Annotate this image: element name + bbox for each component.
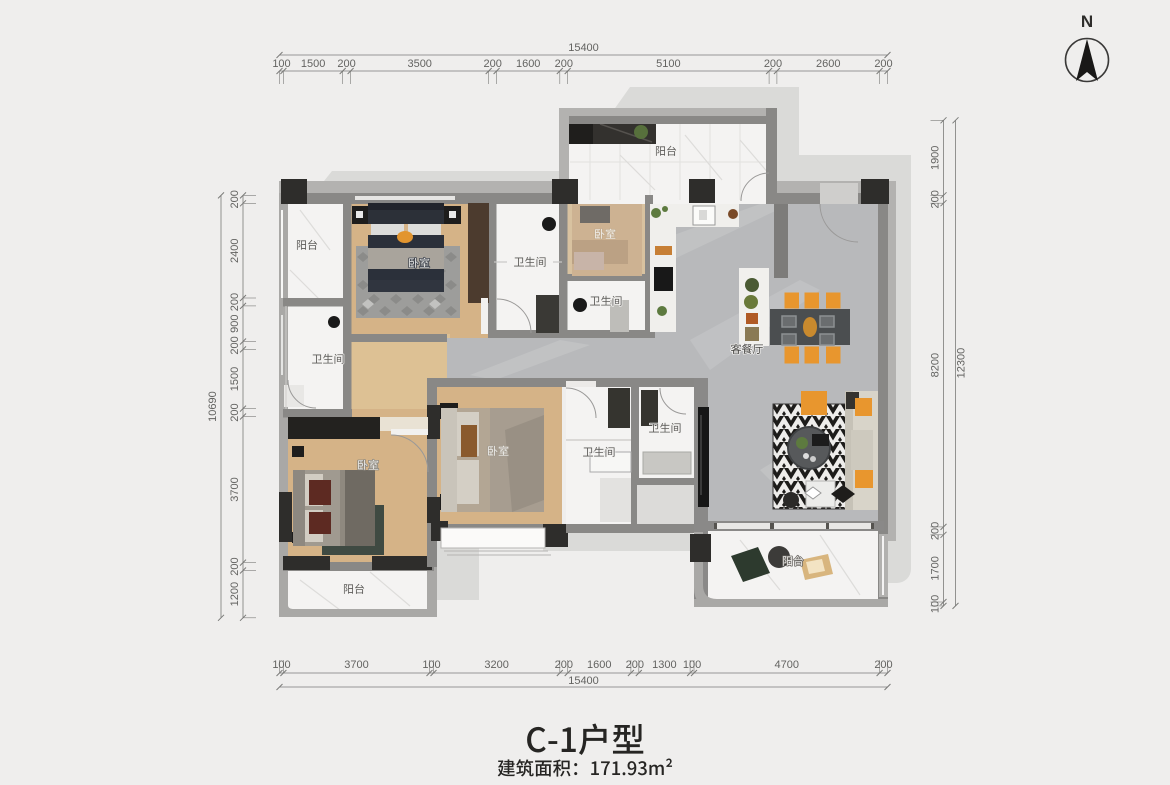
svg-text:1300: 1300 (652, 659, 676, 671)
svg-text:200: 200 (764, 58, 782, 70)
svg-text:100: 100 (422, 659, 440, 671)
svg-text:200: 200 (930, 522, 942, 540)
svg-text:200: 200 (229, 557, 241, 575)
svg-text:100: 100 (930, 595, 942, 613)
svg-text:15400: 15400 (568, 675, 599, 687)
svg-text:1500: 1500 (301, 58, 325, 70)
svg-text:200: 200 (229, 403, 241, 421)
svg-text:1200: 1200 (229, 582, 241, 606)
svg-text:200: 200 (555, 58, 573, 70)
svg-text:200: 200 (337, 58, 355, 70)
svg-text:1600: 1600 (587, 659, 611, 671)
svg-text:8200: 8200 (930, 353, 942, 377)
svg-text:100: 100 (272, 58, 290, 70)
svg-text:1700: 1700 (930, 556, 942, 580)
svg-text:200: 200 (930, 190, 942, 208)
svg-text:3700: 3700 (344, 659, 368, 671)
svg-text:900: 900 (229, 315, 241, 333)
svg-text:4700: 4700 (775, 659, 799, 671)
svg-text:12300: 12300 (956, 348, 968, 379)
svg-text:3500: 3500 (407, 58, 431, 70)
svg-text:2400: 2400 (229, 238, 241, 262)
svg-text:200: 200 (874, 659, 892, 671)
svg-text:100: 100 (683, 659, 701, 671)
svg-text:200: 200 (484, 58, 502, 70)
svg-text:3700: 3700 (229, 477, 241, 501)
svg-text:200: 200 (229, 190, 241, 208)
svg-text:1900: 1900 (930, 146, 942, 170)
svg-text:N: N (1081, 12, 1093, 31)
svg-text:5100: 5100 (656, 58, 680, 70)
svg-text:10690: 10690 (207, 391, 219, 422)
svg-text:200: 200 (626, 659, 644, 671)
svg-text:1500: 1500 (229, 367, 241, 391)
svg-text:200: 200 (229, 293, 241, 311)
svg-text:2600: 2600 (816, 58, 840, 70)
svg-text:1600: 1600 (516, 58, 540, 70)
svg-text:200: 200 (874, 58, 892, 70)
svg-text:15400: 15400 (568, 42, 599, 54)
svg-text:100: 100 (272, 659, 290, 671)
svg-text:200: 200 (555, 659, 573, 671)
svg-text:3200: 3200 (484, 659, 508, 671)
svg-text:200: 200 (229, 336, 241, 354)
